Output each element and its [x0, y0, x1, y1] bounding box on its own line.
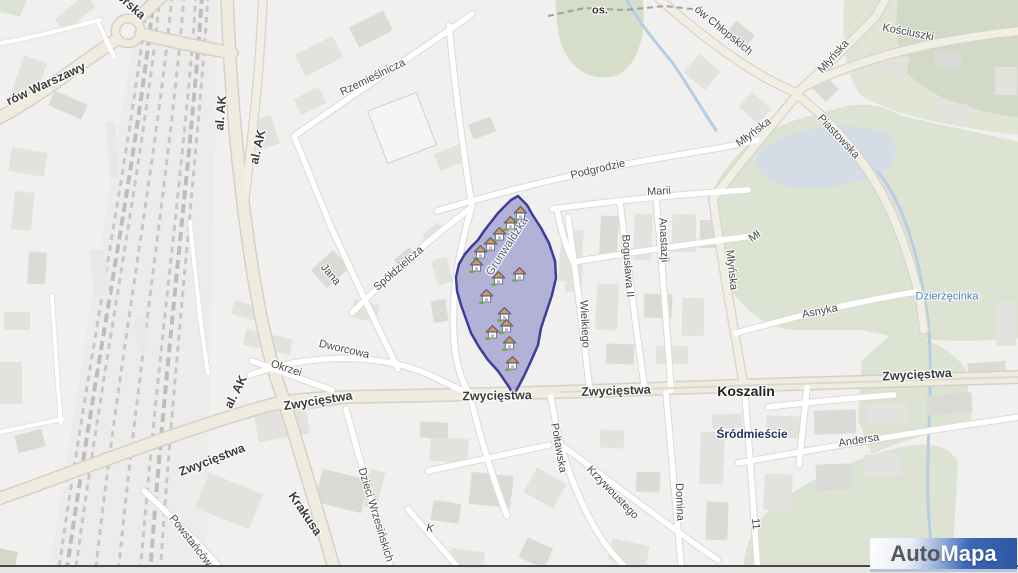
house-poi-icon[interactable] — [501, 335, 518, 352]
brand-auto: Auto — [890, 543, 940, 565]
map-bottom-border — [0, 565, 1018, 573]
brand-mapa: Mapa — [940, 543, 996, 565]
automapa-logo: AutoMapa — [870, 538, 1017, 572]
house-poi-icon[interactable] — [490, 270, 507, 287]
house-poi-icon[interactable] — [504, 355, 521, 372]
house-poi-icon[interactable] — [511, 266, 528, 283]
house-poi-icon[interactable] — [468, 257, 485, 274]
house-poi-icon[interactable] — [478, 288, 495, 305]
map-canvas[interactable]: orskarów Warszawyal. AKal. AKal. AKZwyci… — [0, 0, 1018, 573]
map-graphics — [0, 0, 1018, 573]
house-poi-icon[interactable] — [484, 324, 501, 341]
